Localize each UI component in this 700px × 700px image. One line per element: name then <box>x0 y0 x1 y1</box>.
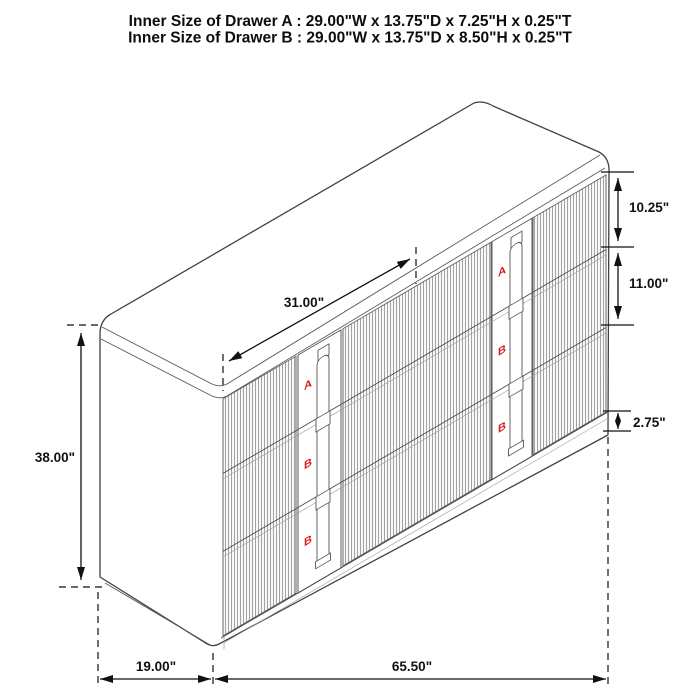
dresser-drawing: A B B A B B <box>100 102 609 651</box>
drawer-a-front-height-label: 10.25" <box>629 200 669 215</box>
overall-height-label: 38.00" <box>35 450 75 465</box>
drawer-handle-right <box>509 230 524 456</box>
drawer-b-inner-size-text: Inner Size of Drawer B : 29.00"W x 13.75… <box>128 30 572 47</box>
left-panel-base-line <box>105 583 212 646</box>
handle-bar <box>317 353 329 567</box>
dimension-overall-height: 38.00" <box>35 325 104 587</box>
dresser-dimension-drawing: Inner Size of Drawer A : 29.00"W x 13.75… <box>0 0 700 700</box>
front-face: A B B A B B <box>221 174 608 651</box>
diagonal-width-label: 31.00" <box>284 295 324 310</box>
fluted-door-right <box>533 175 606 455</box>
front-width-label: 65.50" <box>392 659 432 674</box>
drawer-handle-left <box>316 343 331 569</box>
fluted-panel-center <box>343 242 491 565</box>
diagram-title: Inner Size of Drawer A : 29.00"W x 13.75… <box>128 13 572 47</box>
side-depth-label: 19.00" <box>136 659 176 674</box>
fluted-door-left <box>223 356 296 636</box>
product-dimension-diagram: Inner Size of Drawer A : 29.00"W x 13.75… <box>0 0 700 700</box>
base-height-label: 2.75" <box>633 415 666 430</box>
drawer-a-inner-size-text: Inner Size of Drawer A : 29.00"W x 13.75… <box>129 13 572 30</box>
dimension-drawer-fronts: 10.25" 11.00" <box>601 172 669 325</box>
dimension-base-height: 2.75" <box>603 411 666 431</box>
drawer-b-front-height-label: 11.00" <box>629 276 668 291</box>
handle-bar <box>510 240 522 454</box>
